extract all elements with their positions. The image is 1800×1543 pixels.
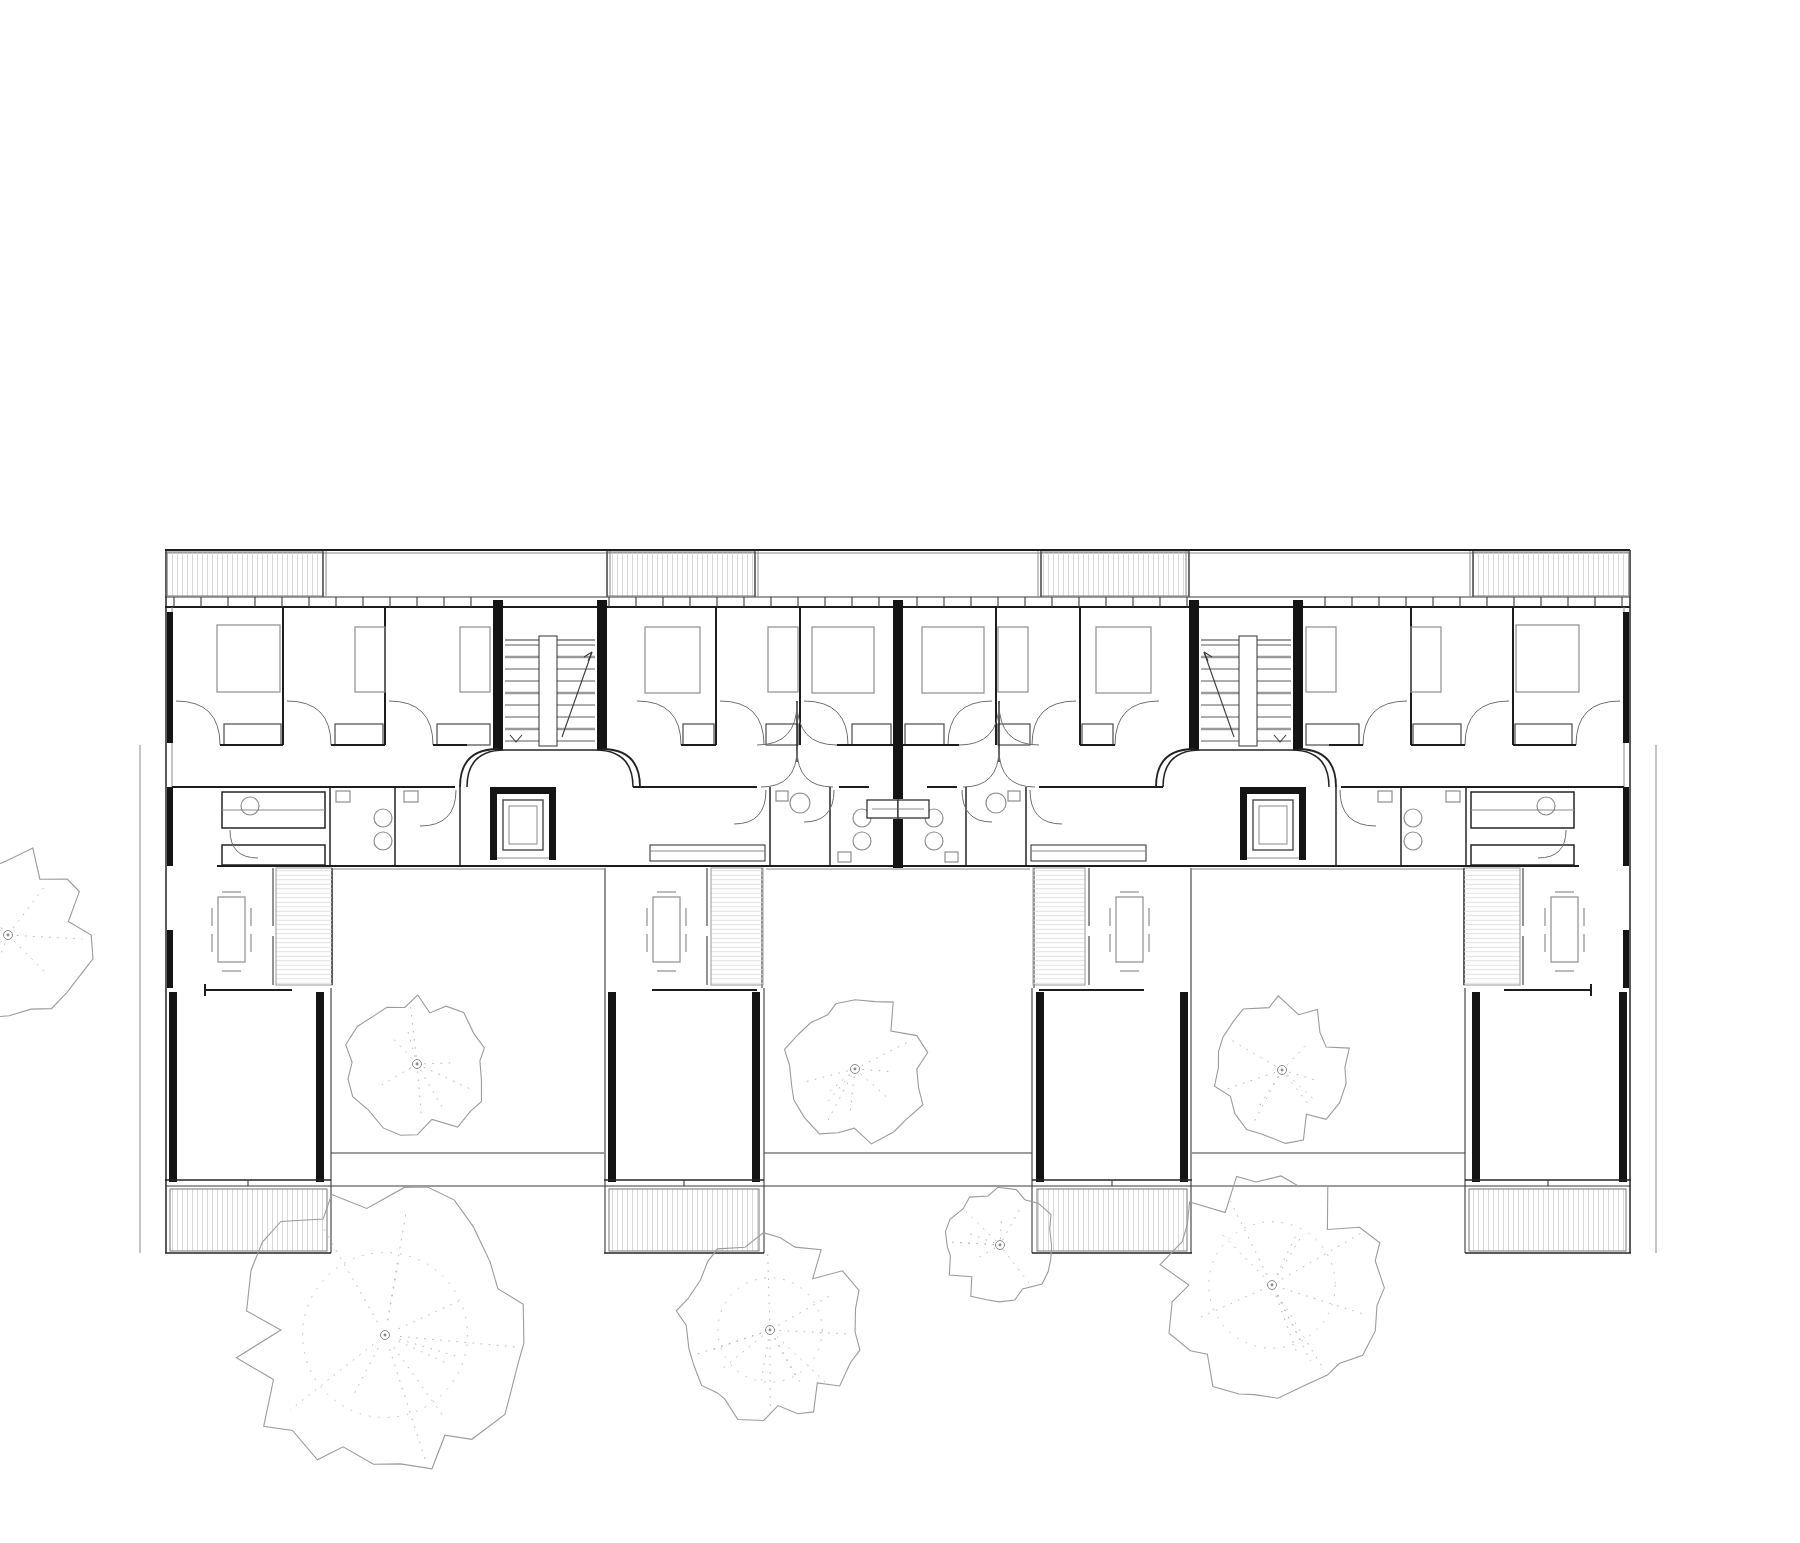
deck-hatch: [1033, 868, 1085, 985]
tree-branch-dots: [1232, 1041, 1275, 1067]
tree: [785, 1000, 928, 1144]
tree-branch-dots: [1282, 1233, 1361, 1279]
tree-branch-dots: [0, 888, 2, 929]
wing-wall-poche: [1036, 992, 1044, 1182]
dining-table: [218, 897, 245, 962]
tree-branch-dots: [1253, 1076, 1279, 1124]
deck-hatch: [276, 868, 332, 985]
tree-branch-dots: [861, 1074, 888, 1098]
wc-bowl: [374, 809, 392, 827]
bath-door-arc: [734, 790, 766, 824]
elevator-car-inner: [1259, 806, 1287, 844]
tree-canopy-outline: [0, 848, 93, 1017]
door-arc: [1576, 701, 1620, 745]
wardrobe: [1515, 724, 1572, 745]
tree: [1215, 996, 1350, 1144]
elevator-wall: [490, 787, 497, 860]
wc-bowl: [1404, 832, 1422, 850]
door-arc: [804, 701, 848, 745]
wardrobe: [905, 724, 944, 745]
wc-bowl: [374, 832, 392, 850]
unit-entry-door-arc: [602, 749, 640, 787]
dining-table: [653, 897, 680, 962]
bed: [460, 627, 490, 692]
stair-center-strip: [1239, 636, 1257, 746]
kitchen-counter: [650, 845, 765, 861]
wc-bowl: [1404, 809, 1422, 827]
bath-door-arc: [230, 830, 258, 858]
tree: [346, 995, 485, 1135]
door-arc: [176, 701, 220, 745]
tree-branch-dots: [352, 1348, 378, 1397]
wardrobe: [437, 724, 490, 745]
tree-trunk-center: [999, 1244, 1002, 1247]
central-opening-arc: [797, 749, 833, 787]
tree-branch-dots: [775, 1338, 798, 1380]
tree-branch-dots: [17, 935, 83, 939]
tree: [0, 848, 93, 1017]
bed: [1411, 627, 1441, 692]
bed: [1306, 627, 1336, 692]
tree-branch-dots: [720, 1336, 763, 1371]
door-arc: [1115, 701, 1159, 745]
bath-closet: [1471, 845, 1574, 865]
cistern: [776, 791, 788, 801]
tree-branch-dots: [711, 1333, 761, 1350]
central-opening-arc: [797, 703, 837, 745]
bed: [355, 627, 385, 692]
wall-poche: [1623, 787, 1629, 866]
tree-branch-dots: [390, 1035, 412, 1059]
tree-branch-dots: [1278, 1295, 1322, 1367]
wardrobe: [766, 724, 798, 745]
wall-poche: [167, 612, 173, 743]
wc-bowl: [853, 832, 871, 850]
party-wall: [893, 600, 898, 799]
bed: [812, 627, 874, 693]
bed: [768, 627, 798, 692]
elevator-wall: [1240, 787, 1306, 794]
wing-wall-poche: [1180, 992, 1188, 1182]
wall-poche: [1623, 930, 1629, 988]
stair-core-wall: [1189, 600, 1199, 750]
wardrobe: [1082, 724, 1113, 745]
bed: [217, 625, 280, 692]
door-arc: [720, 701, 764, 745]
bed: [998, 627, 1028, 692]
wardrobe: [852, 724, 891, 745]
tree-branch-dots: [1287, 1044, 1308, 1065]
tree-branch-dots: [1222, 1072, 1275, 1090]
tree-branch-dots: [290, 1344, 373, 1410]
cistern: [336, 791, 350, 802]
floor-plan-drawing: [0, 0, 1800, 1543]
tree-trunk-center: [1271, 1284, 1274, 1287]
stair-center-strip: [539, 636, 557, 746]
tree-trunk-center: [854, 1068, 857, 1071]
tree-branch-dots: [1222, 1234, 1264, 1277]
door-arc: [287, 701, 331, 745]
balcony-hatch: [167, 552, 323, 596]
party-wall: [898, 819, 903, 868]
tree-branch-dots: [1197, 1290, 1262, 1319]
stair-arrow: [1204, 652, 1234, 737]
washbasin: [1537, 797, 1555, 815]
cistern: [1008, 791, 1020, 801]
cistern: [945, 852, 958, 862]
tree-branch-dots: [806, 1071, 847, 1082]
building-left-half: [140, 550, 898, 1253]
washbasin: [790, 793, 810, 813]
bath-closet: [222, 845, 325, 865]
stair-core-wall: [597, 600, 607, 750]
tree-branch-dots: [954, 1242, 995, 1245]
wardrobe: [1413, 724, 1461, 745]
tree-branch-dots: [1286, 1076, 1309, 1105]
bath-door-arc: [1538, 830, 1566, 858]
tree-branch-dots: [862, 1070, 890, 1072]
tree-branch-dots: [390, 1349, 427, 1462]
central-opening-arc: [959, 703, 999, 745]
tree-branch-dots: [400, 1336, 515, 1347]
tree-branch-dots: [424, 1067, 472, 1089]
tree-branch-dots: [949, 1242, 994, 1245]
deck-hatch: [1464, 868, 1520, 985]
wing-wall-poche: [752, 992, 760, 1182]
wing-balcony-hatch: [1037, 1189, 1187, 1251]
cistern: [1378, 791, 1392, 802]
wall-poche: [1623, 612, 1629, 743]
dining-table: [1551, 897, 1578, 962]
bed: [1096, 627, 1151, 693]
bed: [645, 627, 700, 693]
deck-hatch: [711, 868, 763, 985]
tree-trunk-center: [384, 1334, 387, 1337]
door-arc: [1465, 701, 1509, 745]
wardrobe: [224, 724, 281, 745]
wall-poche: [167, 787, 173, 866]
door-arc: [637, 701, 681, 745]
wing-wall-poche: [608, 992, 616, 1182]
tree-trunk-center: [416, 1063, 419, 1066]
party-wall: [893, 819, 898, 868]
door-arc: [948, 701, 992, 745]
tree: [1160, 1176, 1384, 1398]
cistern: [1446, 791, 1460, 802]
wardrobe: [1306, 724, 1359, 745]
tree-branch-dots: [1000, 1217, 1001, 1239]
elevator-car-inner: [509, 806, 537, 844]
bed: [922, 627, 984, 693]
tree-trunk-center: [7, 934, 10, 937]
building-right-half: [898, 550, 1656, 1253]
tree-trunk-center: [1281, 1069, 1284, 1072]
unit-entry-door-arc: [1156, 749, 1194, 787]
kitchen-counter: [1031, 845, 1146, 861]
tree: [676, 1233, 860, 1421]
door-arc: [1032, 701, 1076, 745]
party-wall: [898, 600, 903, 799]
tree-branch-dots: [421, 1070, 445, 1111]
bath-door-arc: [1030, 790, 1062, 824]
bed: [1516, 625, 1579, 692]
building-shared: [165, 550, 1630, 607]
wing-wall-poche: [1472, 992, 1480, 1182]
wc-bowl: [925, 832, 943, 850]
floor-plan-sheet: [0, 0, 1800, 1543]
tree-branch-dots: [1283, 1288, 1364, 1314]
central-opening-arc: [999, 749, 1035, 787]
tree-branch-dots: [394, 1347, 446, 1419]
washbasin: [986, 793, 1006, 813]
door-arc: [389, 701, 433, 745]
tree-branch-dots: [828, 1075, 851, 1102]
balcony-hatch: [1473, 552, 1629, 596]
elevator-wall: [549, 787, 556, 860]
tree-branch-dots: [1278, 1238, 1301, 1275]
wall-poche: [167, 930, 173, 988]
tree-branch-dots: [418, 1071, 422, 1115]
tree-branch-dots: [694, 1333, 761, 1355]
wing-wall-poche: [169, 992, 177, 1182]
tree-branch-dots: [779, 1330, 849, 1334]
balcony-hatch: [1041, 552, 1189, 596]
tree-branch-dots: [388, 1214, 406, 1321]
wing-balcony-hatch: [1469, 1189, 1626, 1251]
tree-branch-dots: [1277, 1295, 1310, 1361]
stair-core-wall: [493, 600, 503, 750]
stair-core-wall: [1293, 600, 1303, 750]
cistern: [838, 852, 851, 862]
tree-branch-dots: [324, 1229, 377, 1322]
wardrobe: [683, 724, 714, 745]
tree-branch-dots: [778, 1296, 830, 1326]
washbasin: [241, 797, 259, 815]
tree-branch-dots: [424, 1063, 450, 1064]
tree-branch-dots: [399, 1299, 463, 1329]
tree-branch-dots: [1276, 1296, 1297, 1352]
tree-branch-dots: [777, 1337, 829, 1386]
unit-entry-door-arc: [1298, 749, 1336, 787]
tree-trunk-center: [769, 1329, 772, 1332]
tree-branch-dots: [13, 883, 47, 927]
cistern: [404, 791, 418, 802]
tree-branch-dots: [1289, 1072, 1316, 1080]
tree-branch-dots: [850, 1076, 854, 1115]
tree-branch-dots: [775, 1338, 802, 1385]
tree-branch-dots: [1004, 1250, 1030, 1284]
wing-wall-poche: [1619, 992, 1627, 1182]
tree-branch-dots: [862, 1043, 907, 1066]
wardrobe: [998, 724, 1030, 745]
wardrobe: [335, 724, 383, 745]
tree-branch-dots: [1258, 1076, 1278, 1108]
elevator-wall: [1299, 787, 1306, 860]
tree: [945, 1187, 1051, 1302]
central-opening-arc: [963, 749, 999, 787]
dining-table: [1116, 897, 1143, 962]
tree-branch-dots: [1230, 1201, 1267, 1274]
tree-branch-dots: [966, 1211, 996, 1241]
tree-branch-dots: [0, 940, 1, 976]
tree-branch-dots: [408, 1032, 415, 1057]
tree-branch-dots: [830, 1074, 850, 1092]
tree-branch-dots: [399, 1341, 447, 1363]
elevator-wall: [490, 787, 556, 794]
tree-branch-dots: [14, 941, 46, 973]
wing-balcony-hatch: [609, 1189, 759, 1251]
tree-branch-dots: [399, 1339, 460, 1357]
tree-branch-dots: [761, 1339, 768, 1380]
tree-branch-dots: [976, 1248, 995, 1259]
tree-branch-dots: [768, 1249, 770, 1321]
elevator-wall: [1240, 787, 1247, 860]
tree-branch-dots: [968, 1233, 995, 1243]
balcony-hatch: [607, 552, 755, 596]
central-opening-arc: [761, 749, 797, 787]
tree-branch-dots: [1003, 1205, 1022, 1240]
tree-branch-dots: [0, 941, 2, 988]
door-arc: [1363, 701, 1407, 745]
stair-arrow: [562, 652, 592, 737]
tree-branch-dots: [0, 943, 5, 991]
trees: [0, 848, 1384, 1469]
tree-branch-dots: [382, 1068, 411, 1085]
tree-branch-dots: [1277, 1231, 1298, 1275]
unit-entry-door-arc: [460, 749, 498, 787]
bath-door-arc: [420, 790, 456, 826]
wing-wall-poche: [316, 992, 324, 1182]
bath-door-arc: [1340, 790, 1376, 826]
